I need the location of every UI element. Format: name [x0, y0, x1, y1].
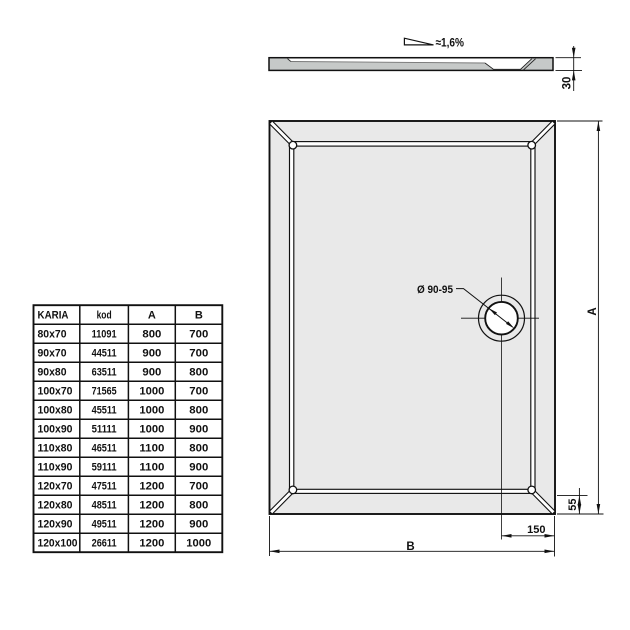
- svg-text:800: 800: [189, 500, 208, 512]
- svg-text:800: 800: [189, 443, 208, 455]
- svg-text:1000: 1000: [139, 424, 164, 436]
- svg-text:1000: 1000: [139, 386, 164, 398]
- svg-text:A: A: [148, 310, 156, 322]
- svg-text:90x80: 90x80: [38, 367, 67, 379]
- svg-text:900: 900: [189, 462, 208, 474]
- svg-text:110x80: 110x80: [38, 443, 73, 455]
- svg-text:120x70: 120x70: [38, 481, 73, 493]
- svg-text:1200: 1200: [139, 538, 164, 550]
- svg-text:120x80: 120x80: [38, 500, 73, 512]
- svg-text:900: 900: [189, 424, 208, 436]
- svg-text:45511: 45511: [92, 405, 117, 417]
- svg-text:11091: 11091: [92, 329, 117, 341]
- svg-text:700: 700: [189, 348, 208, 360]
- svg-text:1100: 1100: [139, 462, 164, 474]
- svg-text:48511: 48511: [92, 500, 117, 512]
- svg-text:700: 700: [189, 386, 208, 398]
- svg-text:46511: 46511: [92, 443, 117, 455]
- svg-text:90x70: 90x70: [38, 348, 67, 360]
- svg-text:kod: kod: [97, 310, 112, 322]
- svg-text:120x90: 120x90: [38, 519, 73, 531]
- svg-text:800: 800: [189, 405, 208, 417]
- svg-text:110x90: 110x90: [38, 462, 73, 474]
- svg-text:1000: 1000: [186, 538, 211, 550]
- svg-text:55: 55: [567, 498, 579, 510]
- svg-text:120x100: 120x100: [38, 538, 78, 550]
- svg-text:44511: 44511: [92, 348, 117, 360]
- svg-text:100x70: 100x70: [38, 386, 73, 398]
- svg-text:B: B: [195, 310, 203, 322]
- svg-text:71565: 71565: [92, 386, 117, 398]
- svg-text:1100: 1100: [139, 443, 164, 455]
- svg-text:51111: 51111: [92, 424, 117, 436]
- svg-text:1200: 1200: [139, 481, 164, 493]
- svg-text:1200: 1200: [139, 519, 164, 531]
- svg-text:1000: 1000: [139, 405, 164, 417]
- svg-text:59111: 59111: [92, 462, 117, 474]
- svg-text:A: A: [587, 307, 599, 315]
- svg-text:1200: 1200: [139, 500, 164, 512]
- svg-text:Ø 90-95: Ø 90-95: [417, 284, 453, 296]
- svg-text:700: 700: [189, 329, 208, 341]
- svg-text:700: 700: [189, 481, 208, 493]
- svg-text:800: 800: [142, 329, 161, 341]
- svg-text:900: 900: [142, 348, 161, 360]
- svg-text:100x90: 100x90: [38, 424, 73, 436]
- svg-text:63511: 63511: [92, 367, 117, 379]
- svg-text:30: 30: [561, 77, 573, 90]
- svg-text:26611: 26611: [92, 538, 117, 550]
- svg-text:≈1,6%: ≈1,6%: [436, 35, 465, 49]
- svg-text:KARIA: KARIA: [38, 310, 69, 322]
- svg-text:B: B: [406, 541, 414, 553]
- svg-text:900: 900: [142, 367, 161, 379]
- svg-text:900: 900: [189, 519, 208, 531]
- svg-text:800: 800: [189, 367, 208, 379]
- svg-text:80x70: 80x70: [38, 329, 67, 341]
- svg-text:100x80: 100x80: [38, 405, 73, 417]
- svg-text:47511: 47511: [92, 481, 117, 493]
- svg-text:49511: 49511: [92, 519, 117, 531]
- svg-text:150: 150: [527, 524, 545, 536]
